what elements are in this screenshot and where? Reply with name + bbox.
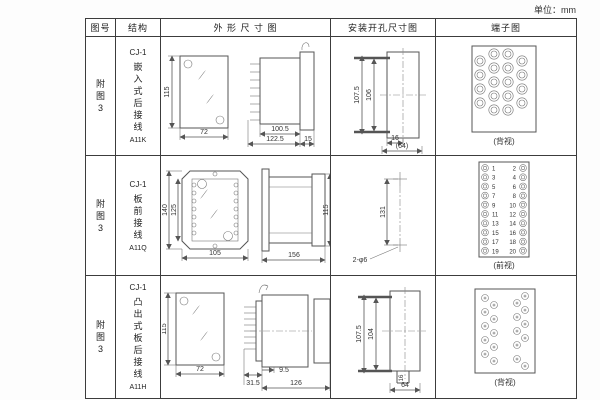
structure-desc: 嵌入式后接线 bbox=[132, 61, 143, 133]
svg-text:140: 140 bbox=[162, 204, 169, 216]
drawing-table: 图号 结构 外 形 尺 寸 图 安装开孔尺寸图 端子图 附图3 CJ-1 嵌入式… bbox=[85, 18, 577, 399]
svg-text:16: 16 bbox=[399, 374, 405, 381]
view-label: (背视) bbox=[494, 377, 516, 387]
figure-number: 附图3 bbox=[95, 198, 106, 234]
svg-text:125: 125 bbox=[171, 204, 178, 216]
seal-mark-icon bbox=[200, 189, 208, 199]
terminal-drawing-rear: (背视) bbox=[437, 38, 575, 155]
svg-text:15: 15 bbox=[492, 231, 499, 237]
outline-drawing-a11h: 115 72 31.5 bbox=[162, 279, 330, 396]
svg-text:18: 18 bbox=[509, 240, 516, 246]
row3-outline-cell: 115 72 31.5 bbox=[161, 276, 331, 398]
model-label: CJ-1 bbox=[130, 48, 147, 57]
svg-text:11: 11 bbox=[492, 213, 499, 219]
svg-text:12: 12 bbox=[509, 213, 516, 219]
seal-mark-icon bbox=[210, 209, 218, 219]
svg-text:(64): (64) bbox=[395, 143, 407, 150]
svg-text:17: 17 bbox=[492, 240, 499, 246]
svg-text:3: 3 bbox=[492, 176, 496, 182]
svg-text:10: 10 bbox=[509, 203, 516, 209]
side-view: 156 115 bbox=[262, 169, 330, 263]
row2-outline-cell: 140 125 105 156 115 bbox=[161, 156, 331, 276]
view-label: (前视) bbox=[493, 260, 515, 270]
svg-text:72: 72 bbox=[196, 366, 204, 373]
side-view: 100.5 122.5 15 bbox=[248, 42, 314, 146]
row1-figure-cell: 附图3 bbox=[86, 37, 116, 156]
header-figure: 图号 bbox=[86, 19, 116, 37]
svg-text:107.5: 107.5 bbox=[354, 86, 361, 104]
row3-figure-cell: 附图3 bbox=[86, 276, 116, 398]
svg-text:105: 105 bbox=[209, 250, 221, 257]
svg-text:6: 6 bbox=[513, 185, 517, 191]
row2-terminal-cell: 12 34 56 78 910 1112 1314 1516 1718 1920… bbox=[436, 156, 576, 276]
seal-mark-icon bbox=[206, 94, 214, 104]
svg-text:16: 16 bbox=[509, 231, 516, 237]
svg-text:100.5: 100.5 bbox=[271, 126, 289, 133]
structure-desc: 凸出式板后接线 bbox=[133, 296, 144, 380]
mounting-drawing-a11q: 131 2-φ6 bbox=[332, 157, 435, 274]
svg-text:64: 64 bbox=[401, 382, 409, 389]
view-label: (背视) bbox=[493, 136, 515, 146]
svg-text:4: 4 bbox=[513, 176, 517, 182]
figure-number: 附图3 bbox=[95, 319, 106, 355]
row3-mounting-cell: 107.5 104 16 64 bbox=[331, 276, 436, 398]
svg-text:8: 8 bbox=[513, 194, 517, 200]
svg-text:106: 106 bbox=[366, 89, 373, 101]
type-code: A11H bbox=[130, 384, 147, 391]
row3-structure-cell: CJ-1 凸出式板后接线 A11H bbox=[116, 276, 161, 398]
svg-text:31.5: 31.5 bbox=[246, 380, 260, 387]
terminal-pins bbox=[482, 292, 529, 369]
row1-mounting-cell: 107.5 106 16 (64) bbox=[331, 37, 436, 156]
seal-mark-icon bbox=[192, 305, 200, 315]
hole-note: 2-φ6 bbox=[352, 257, 367, 264]
svg-text:19: 19 bbox=[492, 249, 499, 255]
row1-outline-cell: 115 72 100.5 12 bbox=[161, 37, 331, 156]
svg-text:115: 115 bbox=[162, 323, 168, 334]
svg-text:122.5: 122.5 bbox=[266, 136, 284, 143]
svg-text:20: 20 bbox=[509, 249, 516, 255]
model-label: CJ-1 bbox=[130, 283, 147, 292]
svg-text:14: 14 bbox=[509, 222, 516, 228]
seal-mark-icon bbox=[200, 331, 208, 341]
outline-drawing-a11k: 115 72 100.5 12 bbox=[162, 38, 330, 155]
header-structure: 结构 bbox=[116, 19, 161, 37]
svg-text:15: 15 bbox=[304, 136, 312, 143]
row2-figure-cell: 附图3 bbox=[86, 156, 116, 276]
terminal-drawing-rear-pins: (背视) bbox=[437, 279, 575, 396]
svg-text:126: 126 bbox=[290, 380, 302, 387]
svg-text:7: 7 bbox=[492, 194, 496, 200]
type-code: A11Q bbox=[129, 245, 146, 252]
svg-text:115: 115 bbox=[323, 204, 330, 215]
svg-text:156: 156 bbox=[288, 252, 300, 259]
svg-text:5: 5 bbox=[492, 185, 496, 191]
structure-desc: 板前接线 bbox=[132, 193, 143, 241]
svg-text:9.5: 9.5 bbox=[279, 367, 289, 374]
type-code: A11K bbox=[130, 137, 147, 144]
svg-text:16: 16 bbox=[391, 135, 399, 142]
svg-text:115: 115 bbox=[164, 86, 171, 97]
svg-text:9: 9 bbox=[492, 203, 496, 209]
svg-text:107.5: 107.5 bbox=[356, 325, 363, 343]
svg-text:72: 72 bbox=[200, 129, 208, 136]
row1-structure-cell: CJ-1 嵌入式后接线 A11K bbox=[116, 37, 161, 156]
svg-text:13: 13 bbox=[492, 222, 499, 228]
terminal-screws bbox=[482, 165, 527, 255]
header-mounting: 安装开孔尺寸图 bbox=[331, 19, 436, 37]
terminal-numbers: 12 34 56 78 910 1112 1314 1516 1718 1920 bbox=[492, 167, 517, 256]
header-terminal: 端子图 bbox=[436, 19, 576, 37]
terminal-drawing-front: 12 34 56 78 910 1112 1314 1516 1718 1920… bbox=[437, 157, 575, 274]
row2-mounting-cell: 131 2-φ6 bbox=[331, 156, 436, 276]
side-view: 31.5 9.5 126 bbox=[244, 284, 330, 390]
figure-number: 附图3 bbox=[95, 78, 106, 114]
row2-structure-cell: CJ-1 板前接线 A11Q bbox=[116, 156, 161, 276]
row3-terminal-cell: (背视) bbox=[436, 276, 576, 398]
svg-text:1: 1 bbox=[492, 167, 496, 173]
svg-text:131: 131 bbox=[380, 206, 387, 218]
seal-mark-icon bbox=[198, 70, 206, 80]
mounting-drawing-a11k: 107.5 106 16 (64) bbox=[332, 38, 435, 155]
mounting-drawing-a11h: 107.5 104 16 64 bbox=[332, 279, 435, 396]
unit-label: 单位：mm bbox=[534, 3, 576, 16]
row1-terminal-cell: (背视) bbox=[436, 37, 576, 156]
svg-text:104: 104 bbox=[368, 328, 375, 340]
terminal-screws bbox=[475, 48, 527, 114]
outline-drawing-a11q: 140 125 105 156 115 bbox=[162, 157, 330, 274]
model-label: CJ-1 bbox=[130, 180, 147, 189]
header-outline: 外 形 尺 寸 图 bbox=[161, 19, 331, 37]
document-page: 单位：mm 图号 结构 外 形 尺 寸 图 安装开孔尺寸图 端子图 附图3 CJ… bbox=[0, 0, 600, 400]
svg-text:2: 2 bbox=[513, 167, 517, 173]
